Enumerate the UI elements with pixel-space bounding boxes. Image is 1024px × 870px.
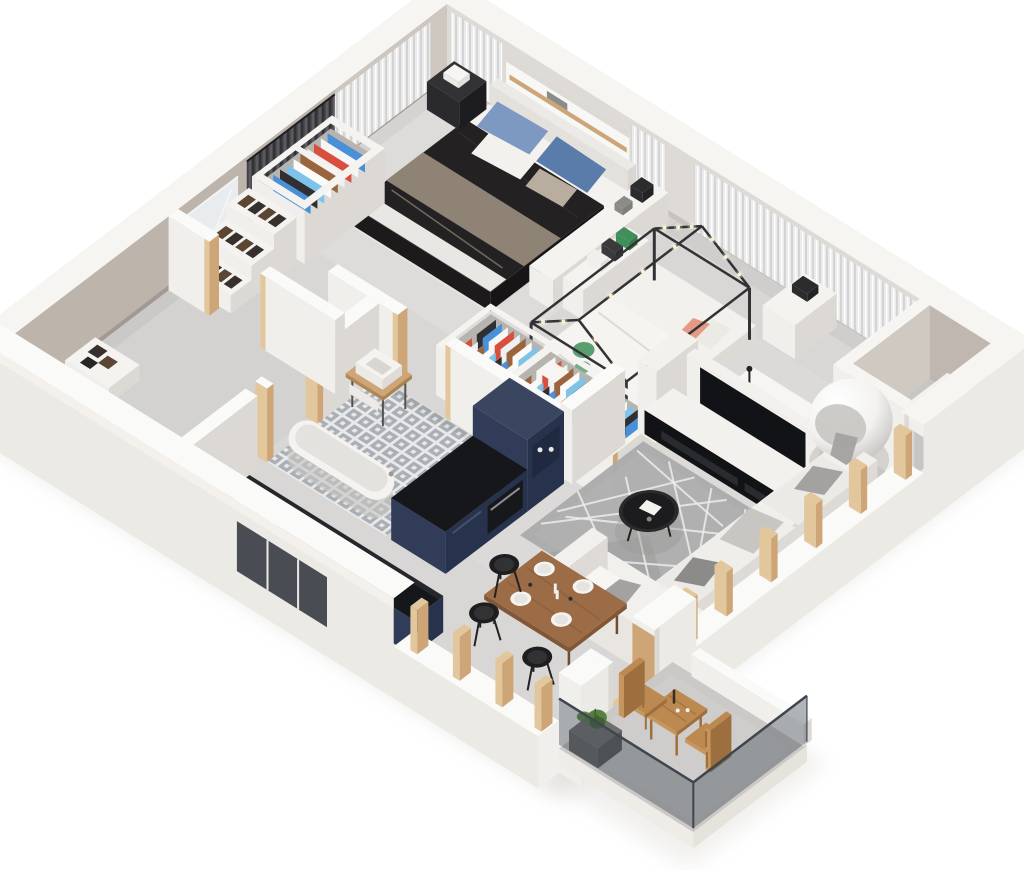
floor-plan-stage: 3D isometric apartment floor plan cutawa… bbox=[0, 0, 1024, 870]
floor-plan-scene: 3D isometric apartment floor plan cutawa… bbox=[0, 0, 1024, 870]
